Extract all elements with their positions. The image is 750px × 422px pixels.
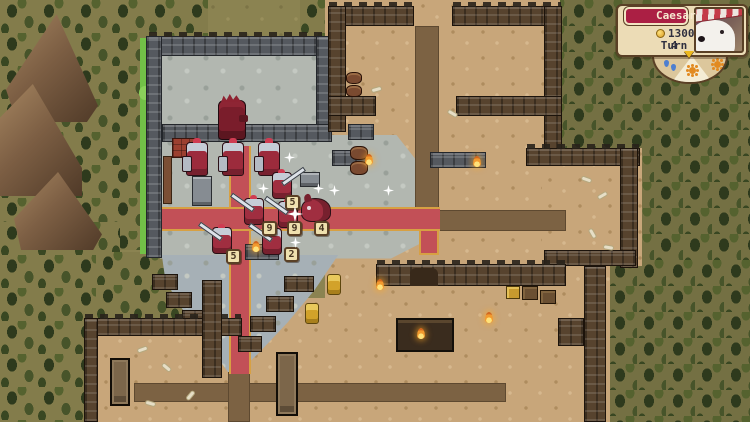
star-effect-icon — [313, 183, 324, 194]
weather-pointer-icon — [684, 51, 694, 58]
torch-flame-icon — [252, 241, 260, 252]
unit-hp-badge: 9 — [262, 221, 277, 236]
unit-hp-badge: 4 — [314, 221, 329, 236]
red-unit-swordsman[interactable] — [222, 142, 244, 176]
player-name-banner: Caesar — [624, 7, 688, 25]
red-unit-dog[interactable] — [301, 198, 331, 222]
sprite-layer: 599425 — [0, 0, 750, 422]
dog-eye — [720, 30, 724, 34]
commander-portrait — [694, 7, 744, 53]
game-map[interactable]: 599425 Caesar 1300 Turn 4 — [0, 0, 750, 422]
torch-flame-icon — [365, 154, 373, 165]
torch-flame-icon — [417, 328, 425, 339]
red-unit-pikeman[interactable] — [244, 198, 264, 225]
bones-decor — [604, 245, 613, 250]
player-name: Caesar — [656, 9, 696, 23]
bones-decor — [146, 401, 155, 406]
torch-flame-icon — [485, 312, 493, 323]
gold-unit[interactable] — [327, 274, 341, 295]
star-effect-icon — [329, 185, 340, 196]
bones-decor — [186, 391, 194, 400]
red-unit-commander[interactable] — [218, 100, 246, 140]
bones-decor — [598, 192, 607, 199]
bones-decor — [138, 347, 147, 353]
unit-hp-badge: 9 — [287, 221, 302, 236]
sun-icon — [689, 67, 696, 74]
sun-icon — [714, 61, 721, 68]
red-unit-swordsman[interactable] — [258, 142, 280, 176]
unit-hp-badge: 2 — [284, 247, 299, 262]
torch-flame-icon — [473, 156, 481, 167]
rain-icon — [671, 64, 676, 71]
bones-decor — [448, 110, 457, 117]
star-effect-icon — [284, 152, 295, 163]
gold-coin-icon — [656, 29, 665, 38]
gold-unit[interactable] — [305, 303, 319, 324]
star-effect-icon — [258, 183, 269, 194]
dog-nose — [698, 36, 705, 42]
bones-decor — [589, 229, 596, 238]
bones-decor — [372, 87, 381, 92]
bones-decor — [162, 363, 171, 371]
unit-hp-badge: 5 — [285, 195, 300, 210]
bones-decor — [582, 177, 591, 183]
red-unit-swordsman[interactable] — [186, 142, 208, 176]
turn-number: 4 — [671, 39, 678, 52]
rain-icon — [664, 60, 669, 67]
star-effect-icon — [383, 185, 394, 196]
unit-hp-badge: 5 — [226, 249, 241, 264]
torch-flame-icon — [376, 279, 384, 290]
